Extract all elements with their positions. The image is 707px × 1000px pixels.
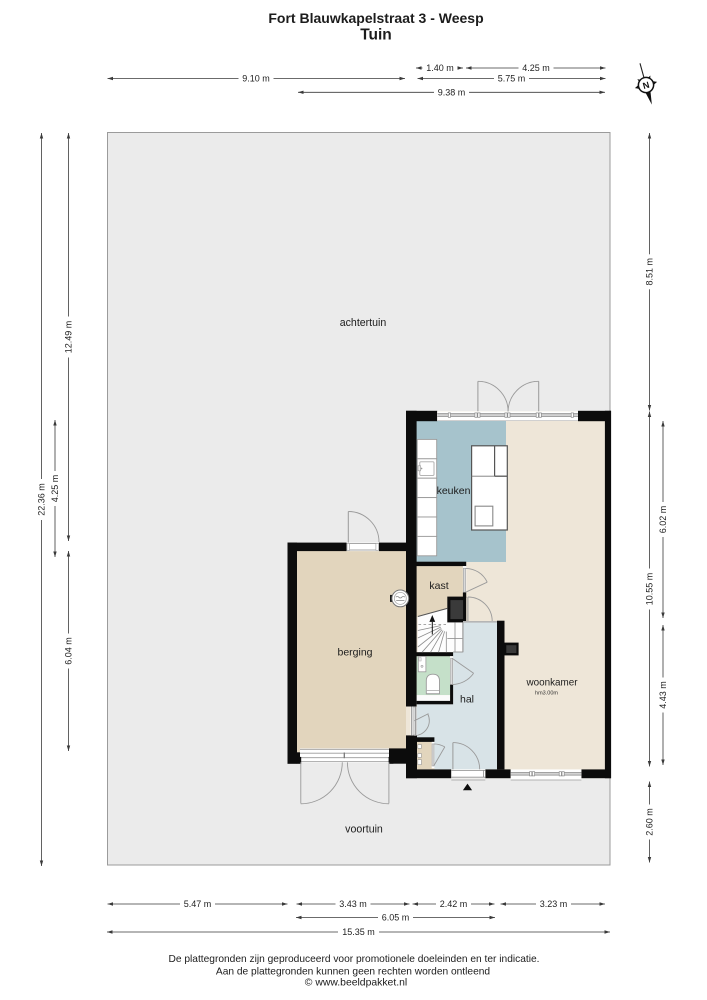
svg-text:Tuin: Tuin <box>360 27 392 44</box>
svg-text:berging: berging <box>337 647 372 659</box>
svg-text:hal: hal <box>460 694 474 706</box>
svg-text:De plattegronden zijn geproduc: De plattegronden zijn geproduceerd voor … <box>169 954 540 965</box>
svg-text:2.60 m: 2.60 m <box>645 808 655 836</box>
svg-text:6.05 m: 6.05 m <box>382 913 410 923</box>
svg-text:1.40 m: 1.40 m <box>426 63 454 73</box>
svg-text:Aan de plattegronden kunnen ge: Aan de plattegronden kunnen geen rechten… <box>216 967 490 978</box>
svg-text:hm3.00m: hm3.00m <box>535 691 558 697</box>
svg-text:22.36 m: 22.36 m <box>37 483 47 516</box>
svg-text:6.04 m: 6.04 m <box>64 637 74 665</box>
svg-text:4.25 m: 4.25 m <box>522 63 550 73</box>
svg-text:keuken: keuken <box>437 485 471 497</box>
svg-text:10.55 m: 10.55 m <box>645 573 655 606</box>
svg-text:© www.beeldpakket.nl: © www.beeldpakket.nl <box>305 978 407 989</box>
svg-text:voortuin: voortuin <box>345 824 383 836</box>
svg-text:2.42 m: 2.42 m <box>440 899 468 909</box>
svg-text:3.23 m: 3.23 m <box>540 899 568 909</box>
svg-text:4.43 m: 4.43 m <box>658 681 668 709</box>
svg-text:5.75 m: 5.75 m <box>498 74 526 84</box>
svg-text:5.47 m: 5.47 m <box>184 899 212 909</box>
svg-text:9.10 m: 9.10 m <box>242 74 270 84</box>
svg-text:8.51 m: 8.51 m <box>645 258 655 286</box>
svg-text:woonkamer: woonkamer <box>525 678 578 689</box>
svg-text:3.43 m: 3.43 m <box>339 899 367 909</box>
svg-text:achtertuin: achtertuin <box>340 317 387 329</box>
svg-text:6.02 m: 6.02 m <box>658 506 668 534</box>
svg-text:kast: kast <box>429 580 448 592</box>
svg-text:Fort Blauwkapelstraat 3 - Wees: Fort Blauwkapelstraat 3 - Weesp <box>268 10 483 26</box>
svg-text:12.49 m: 12.49 m <box>64 321 74 354</box>
svg-text:4.25 m: 4.25 m <box>50 475 60 503</box>
svg-text:15.35 m: 15.35 m <box>342 927 375 937</box>
svg-text:9.38 m: 9.38 m <box>438 87 466 97</box>
